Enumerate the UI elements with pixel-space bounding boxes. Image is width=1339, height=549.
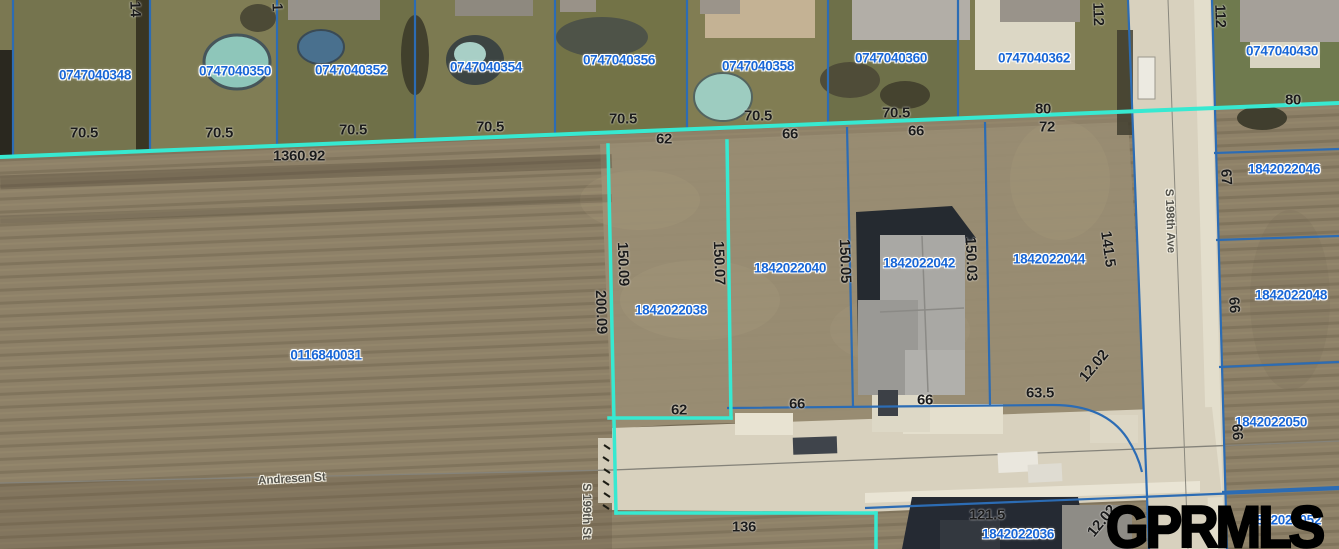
van: [1138, 57, 1155, 99]
driveway-apron: [1090, 415, 1138, 443]
parked-vehicle: [878, 390, 898, 416]
car: [793, 436, 838, 455]
tree: [1237, 106, 1287, 130]
house-1842022042: [856, 206, 976, 416]
truck: [1028, 463, 1063, 483]
aerial-basemap: [0, 0, 1339, 549]
driveway-apron: [735, 413, 793, 435]
aerial-parcel-map[interactable]: 0747040348074704035007470403520747040354…: [0, 0, 1339, 549]
gprmls-watermark: GPRMLS: [1106, 494, 1322, 549]
